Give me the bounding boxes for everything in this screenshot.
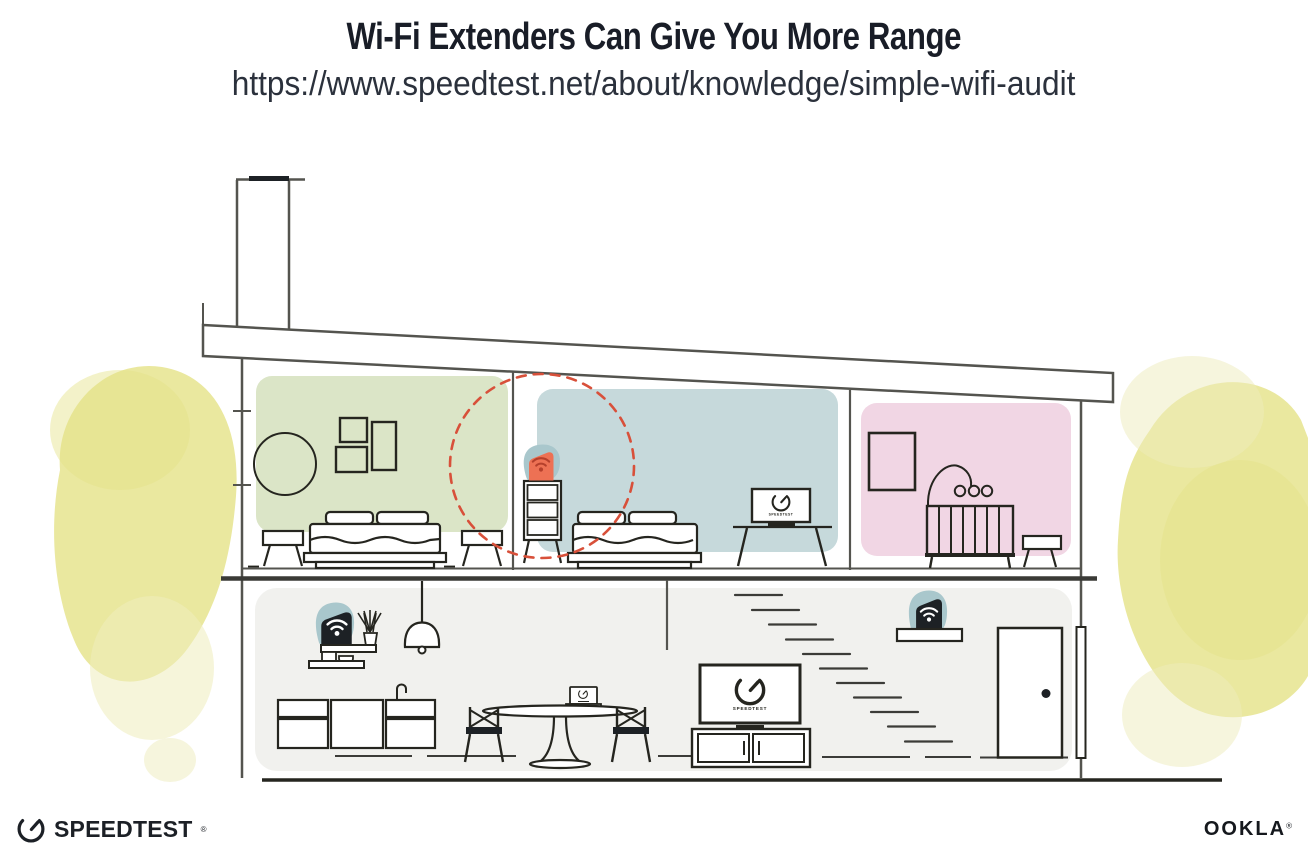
speedtest-gauge-icon	[16, 814, 46, 844]
wall-pilaster	[1077, 627, 1086, 758]
cup	[322, 652, 336, 661]
laptop	[566, 687, 601, 708]
house-cross-section-illustration: SPEEDTEST	[0, 0, 1308, 861]
shelf	[309, 661, 364, 668]
registered-mark: ®	[201, 825, 207, 834]
green-bedroom-wash	[256, 376, 508, 532]
ookla-wordmark: OOKLA	[1204, 818, 1286, 840]
ookla-logo: OOKLA®	[1204, 818, 1292, 841]
speedtest-wordmark: SPEEDTEST	[54, 816, 193, 843]
tv-screen-label: SPEEDTEST	[769, 513, 794, 517]
chimney	[236, 179, 305, 333]
foliage-left	[50, 366, 237, 782]
front-door	[998, 628, 1062, 758]
infographic-page: Wi-Fi Extenders Can Give You More Range …	[0, 0, 1308, 861]
shelf	[897, 629, 962, 641]
nightstand	[263, 531, 303, 566]
media-console	[692, 729, 810, 767]
shelf	[321, 645, 376, 652]
door-knob	[1042, 689, 1051, 698]
speedtest-logo: SPEEDTEST®	[16, 814, 206, 844]
living-room-tv: SPEEDTEST	[700, 665, 800, 729]
pink-nursery-wash	[861, 403, 1071, 556]
foliage-right	[1118, 356, 1308, 767]
tv-screen-label: SPEEDTEST	[733, 706, 768, 711]
registered-mark: ®	[1286, 822, 1292, 831]
